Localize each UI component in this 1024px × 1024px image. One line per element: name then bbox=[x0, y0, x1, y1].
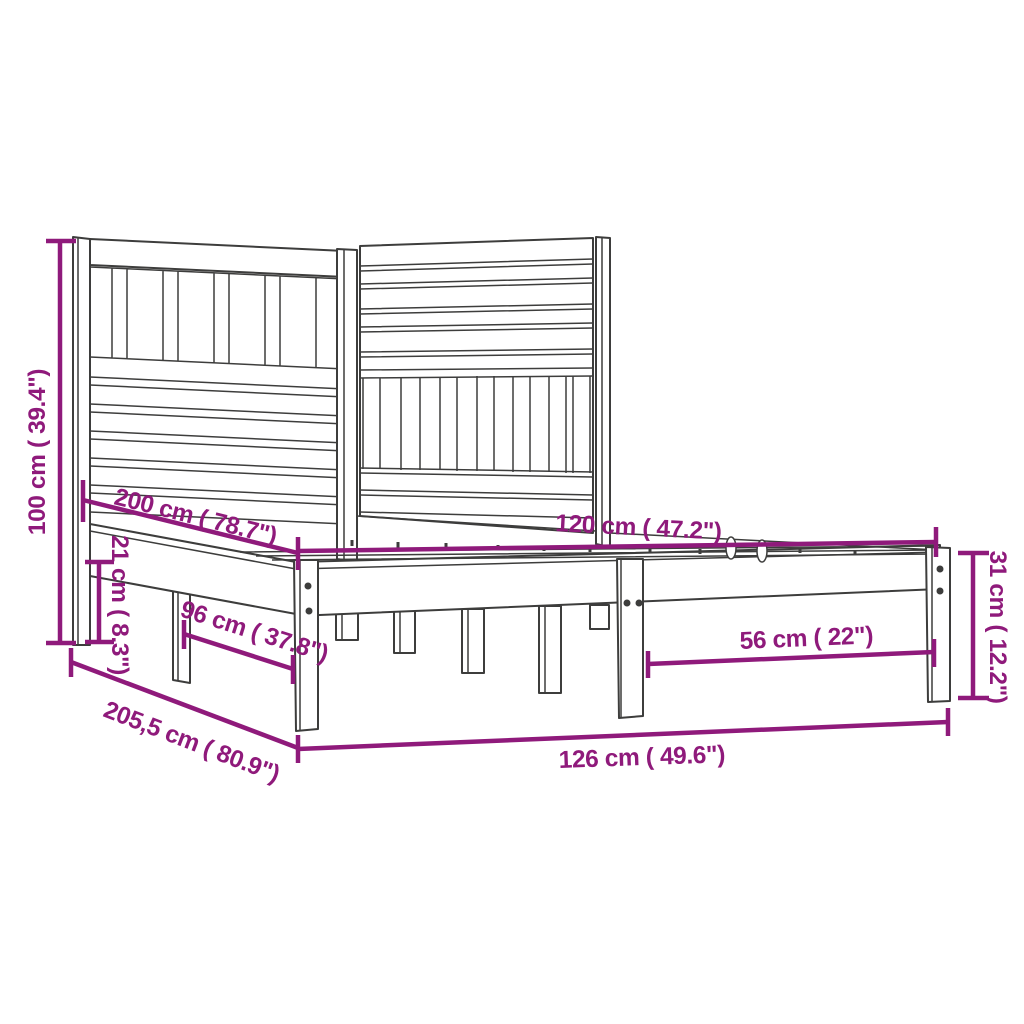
screw-icon bbox=[306, 608, 313, 615]
dim-label-205-5cm: 205,5 cm ( 80.9") bbox=[100, 696, 283, 788]
screw-icon bbox=[937, 588, 944, 595]
screw-icon bbox=[624, 600, 631, 607]
headboard-right-stile bbox=[596, 237, 610, 547]
far-leg bbox=[462, 609, 484, 673]
headboard-middle-post bbox=[337, 249, 357, 562]
slat-strap-hook bbox=[726, 537, 736, 559]
far-leg bbox=[336, 613, 358, 640]
bed-rails bbox=[90, 524, 940, 616]
screw-icon bbox=[937, 566, 944, 573]
dimension-line bbox=[648, 652, 934, 664]
dimension-56cm: 56 cm ( 22") bbox=[648, 622, 934, 678]
headboard-left-top-rail bbox=[90, 239, 345, 277]
far-leg bbox=[394, 611, 415, 653]
dimension-100cm: 100 cm ( 39.4") bbox=[24, 241, 76, 643]
diagram-canvas: 100 cm ( 39.4") 200 cm ( 78.7") 120 cm (… bbox=[0, 0, 1024, 1024]
dimension-31cm: 31 cm ( 12.2") bbox=[958, 550, 1011, 703]
dim-label-126cm: 126 cm ( 49.6") bbox=[558, 741, 725, 774]
far-leg bbox=[539, 606, 561, 693]
headboard-left-vertical-slats bbox=[90, 267, 345, 369]
far-leg bbox=[590, 605, 609, 629]
dim-label-31cm: 31 cm ( 12.2") bbox=[984, 550, 1011, 703]
screw-icon bbox=[305, 583, 312, 590]
screw-icon bbox=[636, 600, 643, 607]
headboard-left-stile bbox=[73, 237, 90, 645]
dim-label-21cm: 21 cm ( 8.3") bbox=[106, 535, 133, 675]
dim-label-100cm: 100 cm ( 39.4") bbox=[24, 369, 51, 535]
dim-label-120cm: 120 cm ( 47.2") bbox=[555, 510, 723, 546]
dim-label-56cm: 56 cm ( 22") bbox=[739, 622, 874, 655]
bed-dimension-diagram: 100 cm ( 39.4") 200 cm ( 78.7") 120 cm (… bbox=[0, 0, 1024, 1024]
